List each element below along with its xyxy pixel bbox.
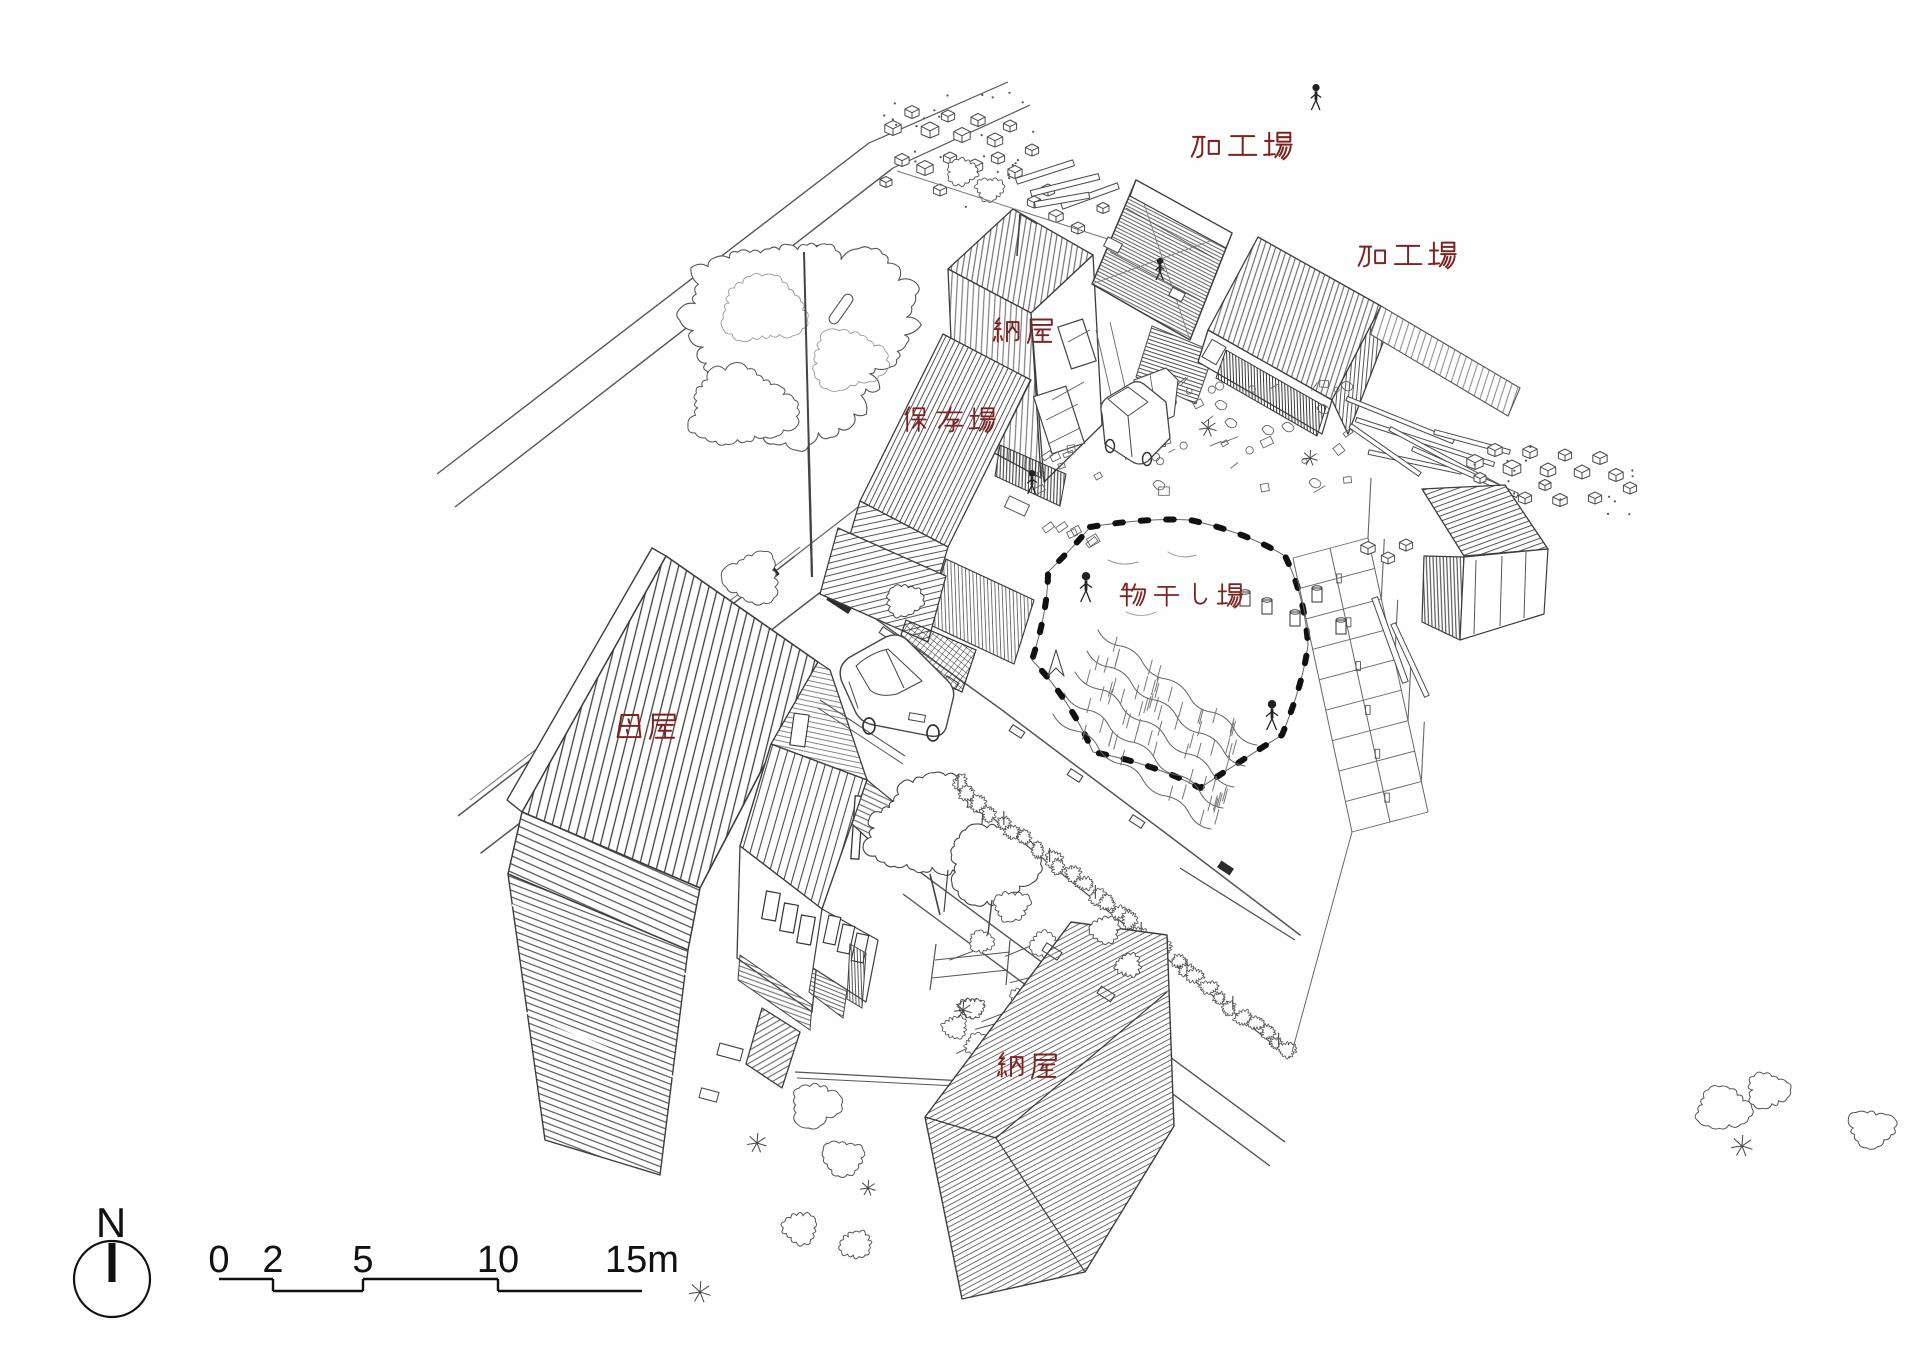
- svg-text:2: 2: [262, 1239, 283, 1281]
- svg-text:0: 0: [208, 1239, 229, 1281]
- svg-text:10: 10: [477, 1239, 519, 1281]
- svg-text:5: 5: [352, 1239, 373, 1281]
- svg-text:N: N: [96, 1199, 126, 1246]
- svg-text:15m: 15m: [605, 1239, 679, 1281]
